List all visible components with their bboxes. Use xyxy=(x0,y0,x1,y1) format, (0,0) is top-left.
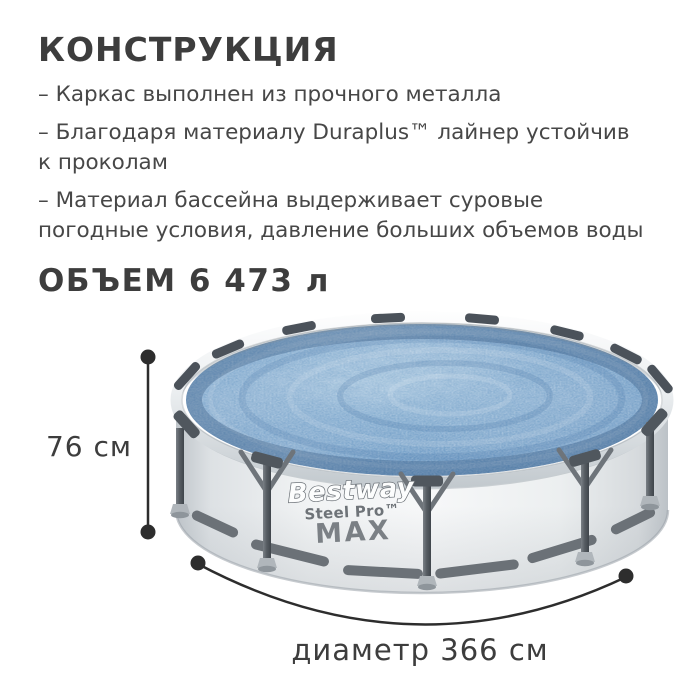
height-dimension-label: 76 см xyxy=(20,430,132,463)
pool-illustration: Bestway Steel Pro™ MAX xyxy=(0,0,700,700)
height-dimension xyxy=(141,350,156,540)
dimension-endpoint-dot xyxy=(141,350,156,365)
diameter-dimension-label: диаметр 366 см xyxy=(240,633,600,667)
dimension-endpoint-dot xyxy=(191,556,206,571)
dimension-endpoint-dot xyxy=(619,569,634,584)
dimension-endpoint-dot xyxy=(141,525,156,540)
model-label: MAX xyxy=(314,515,392,550)
product-infographic: { "title": "КОНСТРУКЦИЯ", "features": [ … xyxy=(0,0,700,700)
